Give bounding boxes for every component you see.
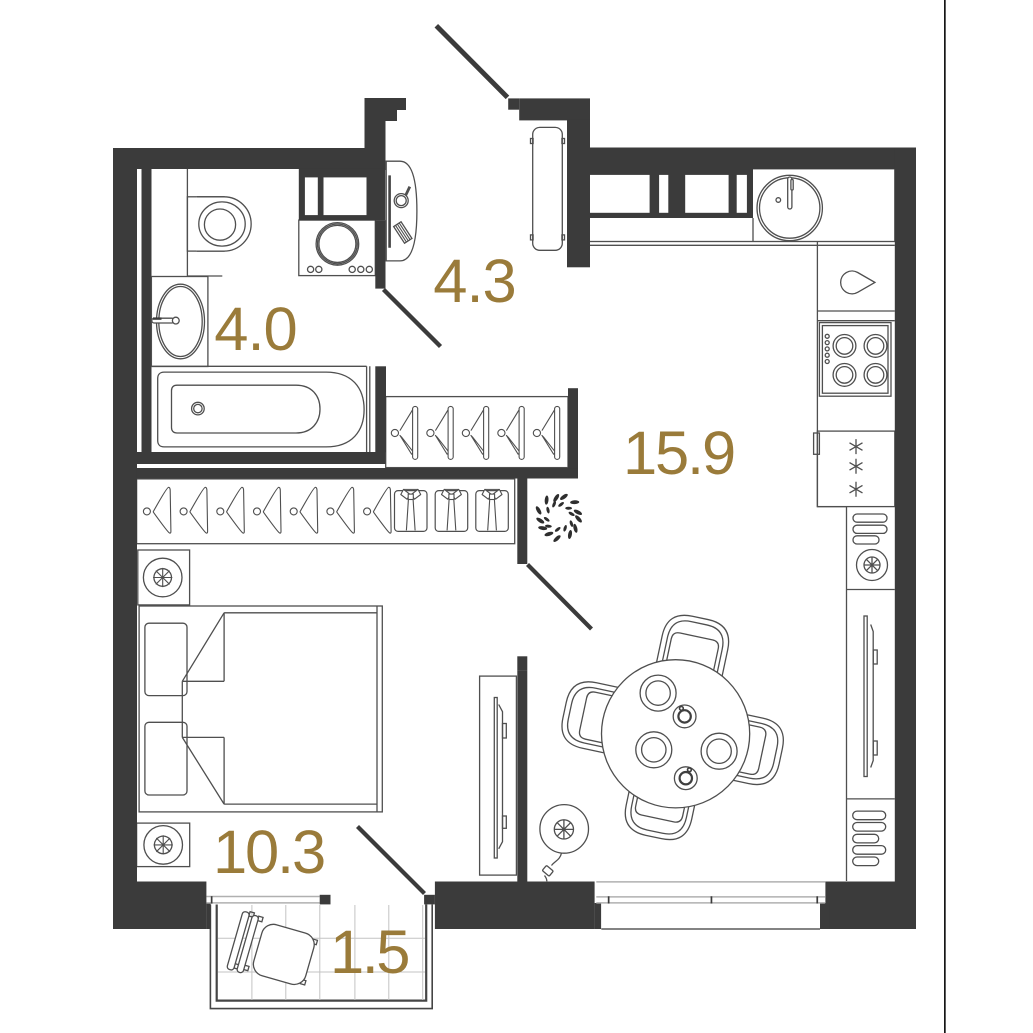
svg-text:15.9: 15.9 bbox=[623, 419, 734, 488]
svg-text:1.5: 1.5 bbox=[330, 918, 408, 987]
svg-text:4.3: 4.3 bbox=[433, 247, 516, 316]
svg-text:4.0: 4.0 bbox=[214, 295, 297, 364]
svg-text:10.3: 10.3 bbox=[213, 818, 324, 887]
